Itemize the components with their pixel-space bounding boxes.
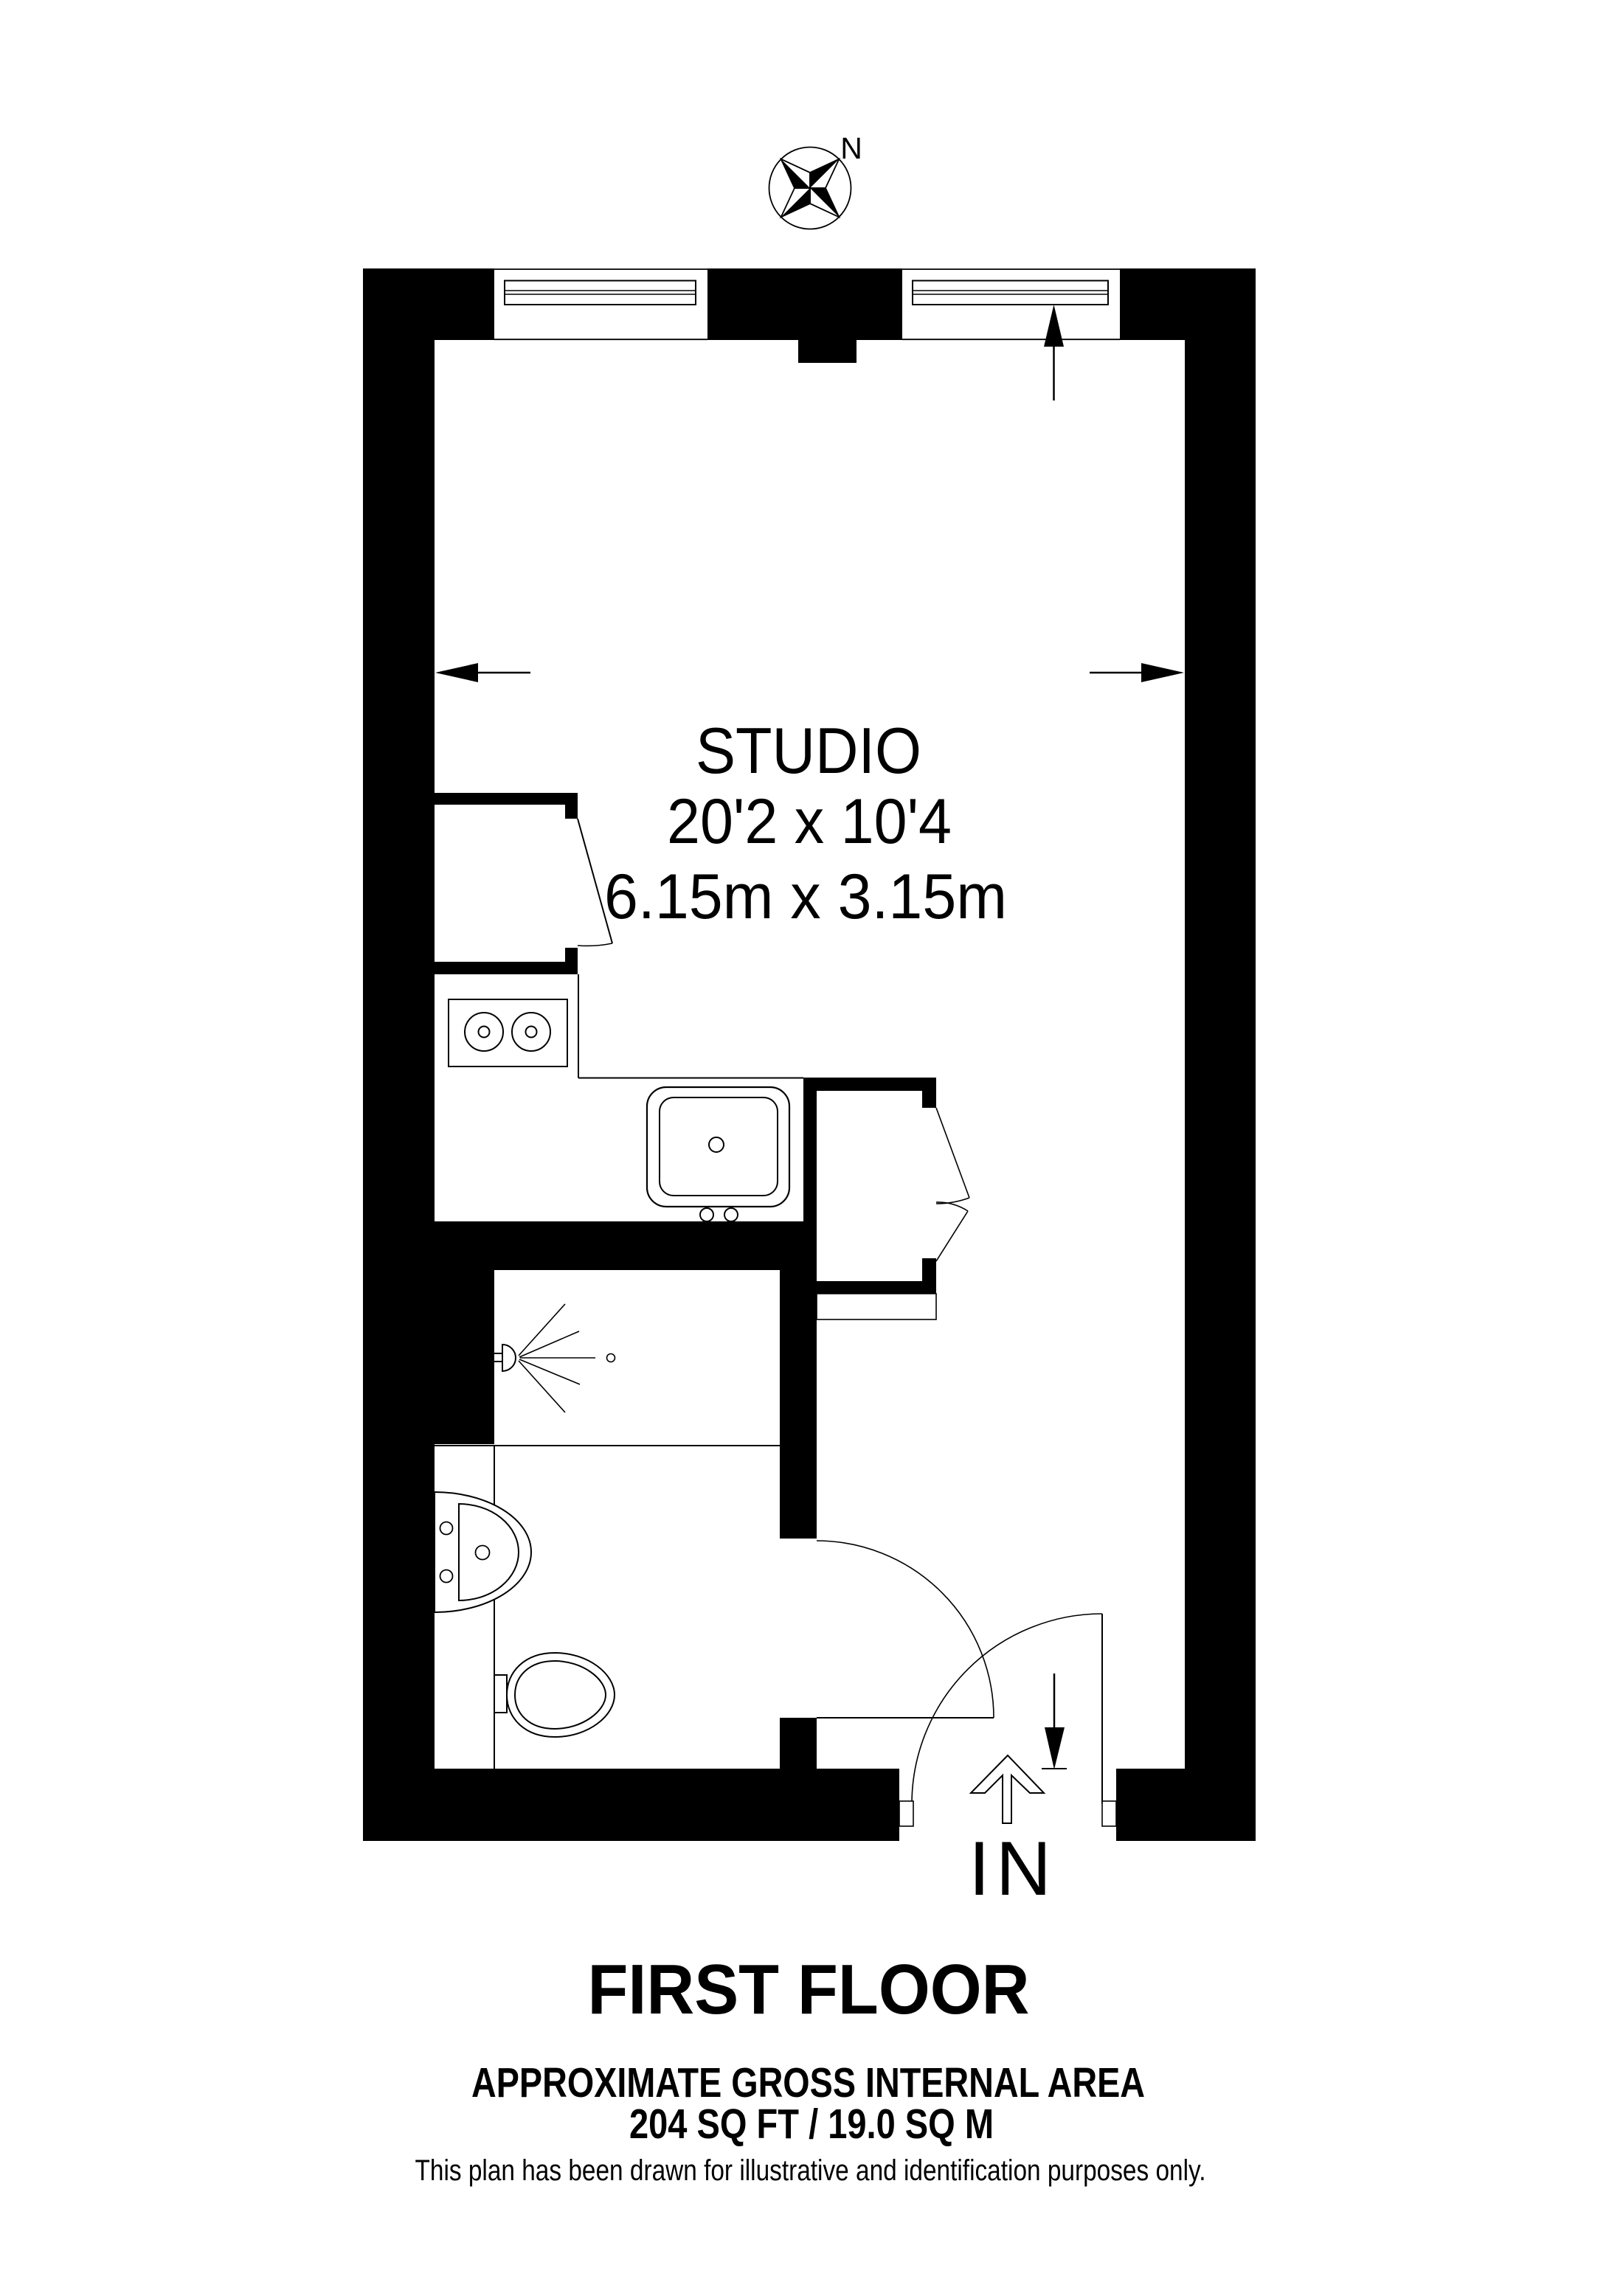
- svg-text:STUDIO: STUDIO: [696, 714, 921, 787]
- svg-text:APPROXIMATE GROSS INTERNAL ARE: APPROXIMATE GROSS INTERNAL AREA: [471, 2059, 1145, 2106]
- svg-text:6.15m x 3.15m: 6.15m x 3.15m: [604, 861, 1007, 932]
- svg-text:IN: IN: [969, 1826, 1057, 1912]
- svg-text:204 SQ FT / 19.0 SQ M: 204 SQ FT / 19.0 SQ M: [629, 2101, 994, 2148]
- svg-text:20'2 x 10'4: 20'2 x 10'4: [667, 786, 952, 857]
- svg-text:This plan has been drawn for i: This plan has been drawn for illustrativ…: [415, 2154, 1206, 2187]
- svg-text:FIRST FLOOR: FIRST FLOOR: [588, 1950, 1030, 2029]
- svg-text:N: N: [840, 131, 862, 165]
